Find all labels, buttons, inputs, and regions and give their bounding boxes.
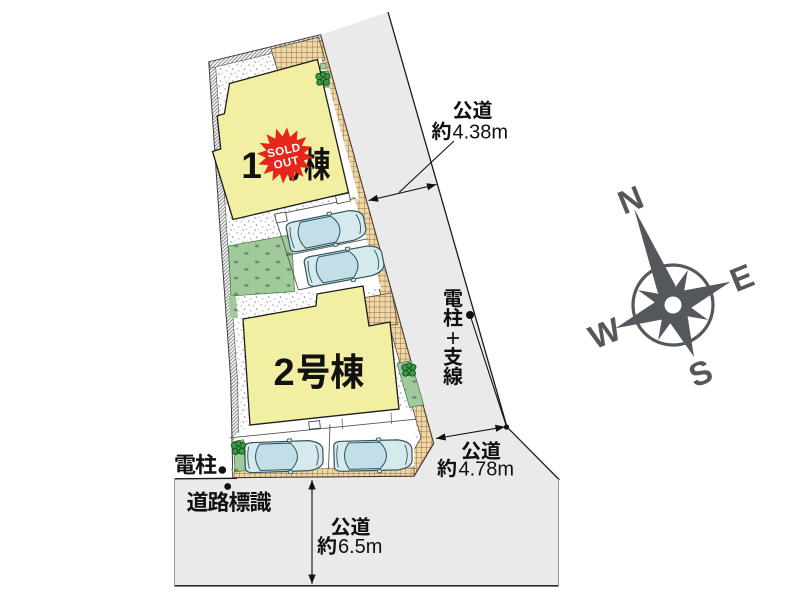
svg-text:2: 2 [274, 352, 295, 394]
svg-text:1: 1 [241, 145, 262, 186]
svg-text:N: N [612, 178, 648, 221]
svg-text:E: E [725, 256, 759, 299]
svg-text:S: S [683, 352, 717, 395]
svg-text:4.78m: 4.78m [459, 459, 515, 481]
svg-text:6.5m: 6.5m [338, 536, 382, 558]
svg-text:4.38m: 4.38m [453, 122, 509, 144]
svg-text:W: W [583, 310, 627, 356]
